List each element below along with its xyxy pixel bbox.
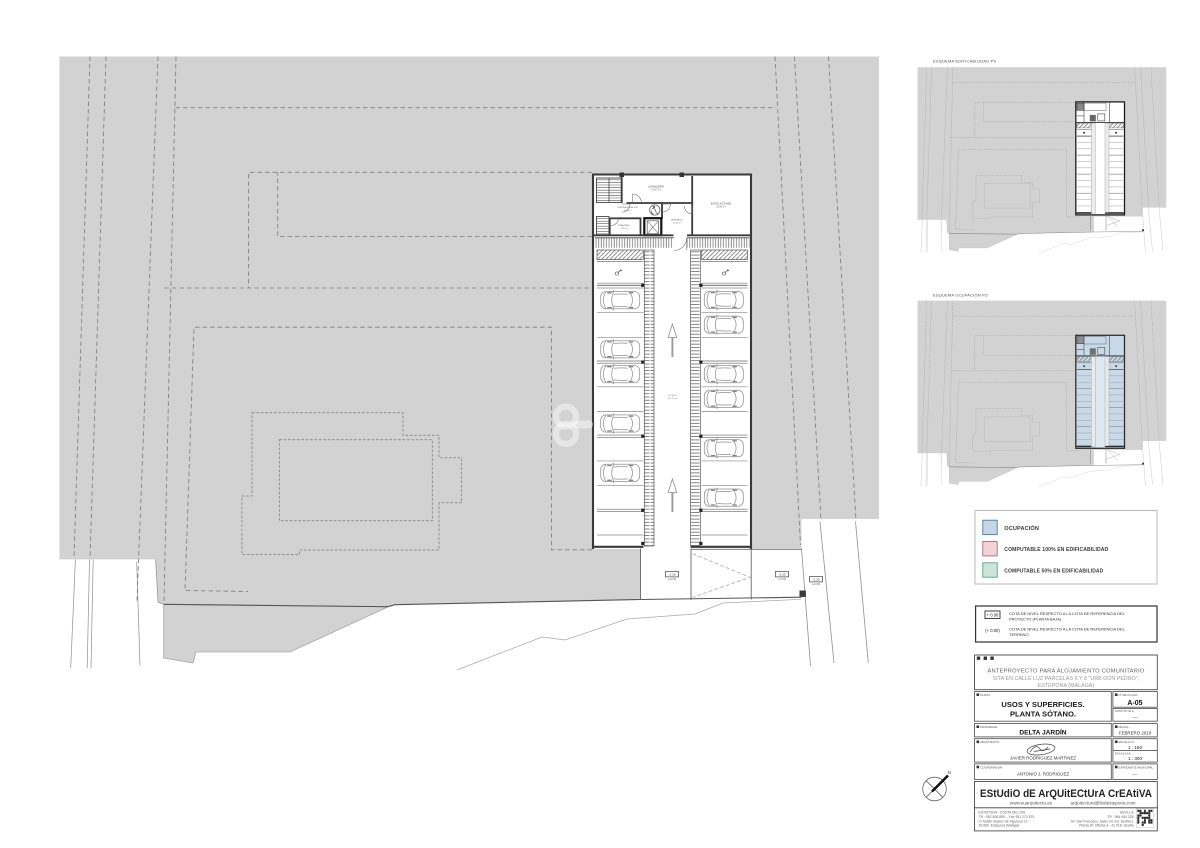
svg-text:----: ----	[1132, 771, 1138, 776]
svg-text:502,29 m²: 502,29 m²	[668, 397, 678, 400]
svg-text:USOS Y SUPERFICIES.: USOS Y SUPERFICIES.	[1001, 700, 1084, 709]
svg-text:COORDINADOR:: COORDINADOR:	[980, 765, 1003, 769]
svg-text:ESQUEMA OCUPACIÓN PS: ESQUEMA OCUPACIÓN PS	[933, 293, 988, 298]
svg-text:COMPUTABLE 50% EN EDIFICABILID: COMPUTABLE 50% EN EDIFICABILIDAD	[1004, 568, 1103, 574]
svg-text:ANTEPROYECTO PARA ALOJAMIENTO: ANTEPROYECTO PARA ALOJAMIENTO COMUNITARI…	[987, 669, 1145, 675]
svg-text:EXPEDIENTE MUNICIPAL:: EXPEDIENTE MUNICIPAL:	[1119, 765, 1155, 769]
svg-text:JAVIER RODRIGUEZ MARTINEZ: JAVIER RODRIGUEZ MARTINEZ	[1010, 756, 1077, 761]
svg-text:arquitectura@lledestepona.com: arquitectura@lledestepona.com	[1071, 801, 1136, 806]
svg-text:TR : 952 806 889 -- Fax 951: TR : 952 806 889 -- Fax 951 272 875	[979, 815, 1035, 819]
svg-text:-2.10: -2.10	[778, 572, 785, 576]
svg-text:1 : 300: 1 : 300	[1128, 756, 1142, 761]
svg-text:TR . 954 454 328: TR . 954 454 328	[1107, 815, 1133, 819]
svg-text:DISTRIBUIDOR S-B: DISTRIBUIDOR S-B	[618, 207, 638, 209]
svg-text:ANTONIO J. RODRIGUEZ: ANTONIO J. RODRIGUEZ	[1017, 771, 1069, 776]
svg-text:COTA DE NIVEL RESPECTO A LA CO: COTA DE NIVEL RESPECTO A LA COTA DE REFE…	[1009, 611, 1126, 616]
svg-text:-2.10: -2.10	[812, 577, 819, 581]
svg-text:ESCALA A3:: ESCALA A3:	[1115, 752, 1131, 756]
svg-text:www.suarquitecto.es: www.suarquitecto.es	[1010, 801, 1053, 806]
svg-text:SOTANO: SOTANO	[668, 394, 677, 397]
svg-text:VESTIBULO: VESTIBULO	[671, 220, 684, 222]
svg-text:SUSTITUYE A:: SUSTITUYE A:	[1115, 709, 1135, 713]
svg-text:Nº DE PLANO:: Nº DE PLANO:	[1119, 693, 1139, 697]
svg-text:ESCALA A1:: ESCALA A1:	[1119, 740, 1135, 744]
svg-text:ESQUEMA EDIFICABILIDAD PS: ESQUEMA EDIFICABILIDAD PS	[933, 59, 996, 64]
svg-text:+ 0.00: + 0.00	[987, 612, 999, 617]
svg-text:A-05: A-05	[1127, 700, 1142, 707]
svg-text:COMPUTABLE 100% EN EDIFICABILI: COMPUTABLE 100% EN EDIFICABILIDAD	[1004, 547, 1108, 553]
svg-text:Planta 8ª, Oficina 4.- 41.018.: Planta 8ª, Oficina 4.- 41.018. Sevilla	[1079, 824, 1133, 828]
svg-text:TRASTERO: TRASTERO	[618, 224, 630, 227]
svg-text:SITA EN CALLE LUZ PARCELAS 6 Y: SITA EN CALLE LUZ PARCELAS 6 Y 8 "URB DO…	[993, 676, 1140, 682]
svg-text:Av. San Francisco Javier 24, E: Av. San Francisco Javier 24, Ed. Sevilla…	[1071, 819, 1134, 823]
svg-text:EStUdiO dE ArQUitECtUrA CrEAti: EStUdiO dE ArQUitECtUrA CrEAtiVA	[980, 788, 1152, 800]
svg-text:SEVILLA: SEVILLA	[1120, 811, 1134, 815]
svg-text:FECHA:: FECHA:	[1119, 725, 1130, 729]
svg-text:ESTEPONA (MÁLAGA): ESTEPONA (MÁLAGA)	[1038, 682, 1095, 689]
svg-text:TERRENO: TERRENO	[1009, 632, 1029, 637]
svg-text:(+0.00): (+0.00)	[778, 577, 786, 581]
svg-text:1 : 150: 1 : 150	[1128, 745, 1142, 750]
svg-text:----: ----	[1132, 714, 1138, 719]
svg-text:PROPIEDAD:: PROPIEDAD:	[980, 725, 998, 729]
svg-text:(+ 0.00): (+ 0.00)	[985, 628, 1000, 633]
svg-text:OCUPACIÓN: OCUPACIÓN	[1004, 524, 1039, 532]
svg-text:FEBRERO 2019: FEBRERO 2019	[1119, 731, 1152, 736]
svg-text:PLANO:: PLANO:	[980, 693, 991, 697]
svg-text:DELTA JARDÍN: DELTA JARDÍN	[1019, 727, 1066, 736]
svg-text:19,27 m²: 19,27 m²	[651, 189, 661, 192]
svg-text:COTA DE NIVEL RESPECTO A LA CO: COTA DE NIVEL RESPECTO A LA COTA DE REFE…	[1009, 626, 1126, 631]
svg-text:N: N	[948, 770, 951, 775]
svg-text:7,86 m²: 7,86 m²	[620, 227, 628, 230]
svg-text:PLANTA SÓTANO.: PLANTA SÓTANO.	[1010, 709, 1076, 718]
svg-text:ARQUITECTO:: ARQUITECTO:	[980, 740, 1000, 744]
svg-text:13,86 m²: 13,86 m²	[673, 221, 682, 224]
svg-text:PROYECTO (PLANTA BAJA): PROYECTO (PLANTA BAJA)	[1009, 616, 1062, 621]
svg-text:29.680. Estepona (Málaga): 29.680. Estepona (Málaga)	[979, 824, 1020, 828]
svg-text:(+0.00): (+0.00)	[812, 582, 820, 586]
svg-text:ESTEPONA - COSTA DEL SOL: ESTEPONA - COSTA DEL SOL	[979, 811, 1027, 815]
svg-text:36,80 m²: 36,80 m²	[716, 206, 726, 209]
svg-text:C/ Adolfo Suárez de Figueroa 1: C/ Adolfo Suárez de Figueroa 12	[979, 819, 1028, 823]
svg-text:(+0.00): (+0.00)	[668, 577, 676, 581]
svg-text:-2.10: -2.10	[668, 572, 675, 576]
